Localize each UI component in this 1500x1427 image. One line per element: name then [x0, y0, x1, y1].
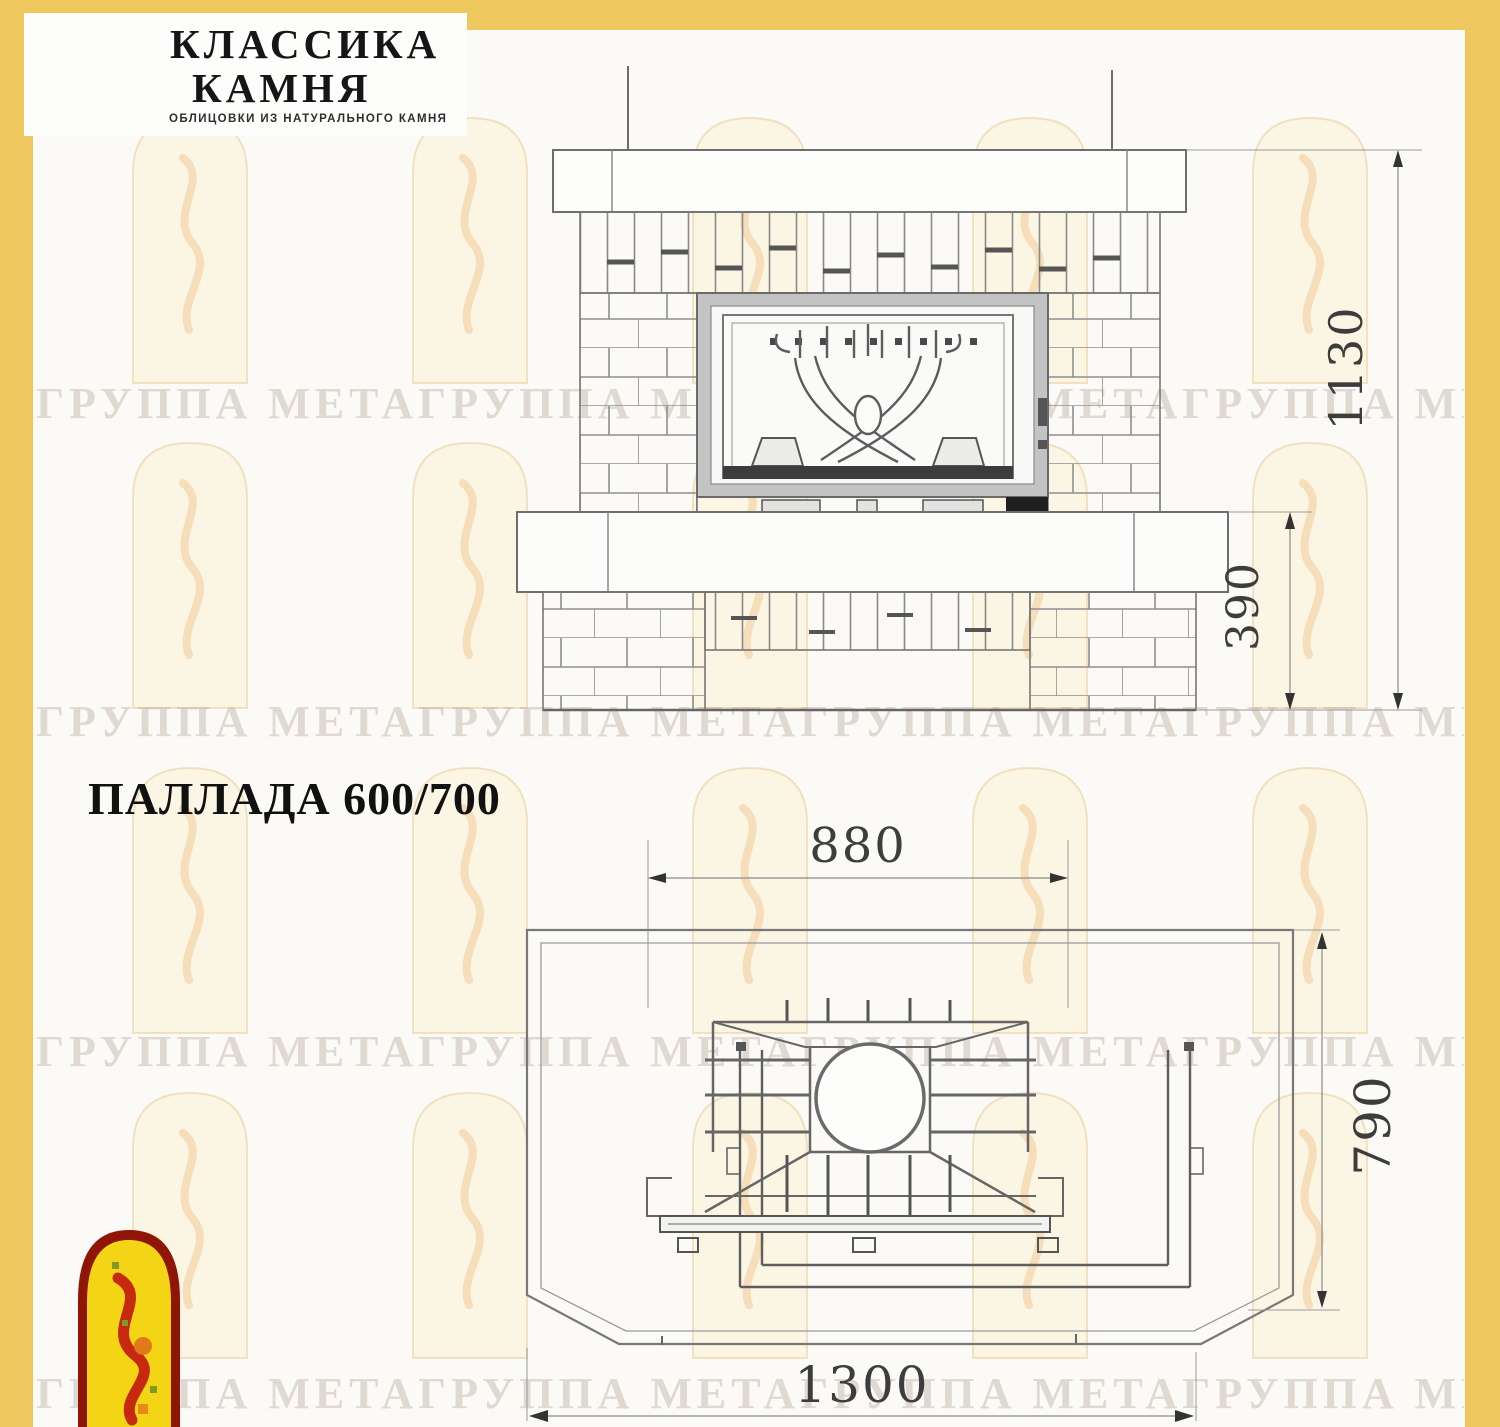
dim-1130-label: 1130 [1319, 305, 1373, 430]
dim-1300-label: 1300 [794, 1356, 929, 1414]
dim-790-label: 790 [1344, 1074, 1402, 1175]
hearth-recess-walls [727, 1042, 1203, 1287]
dimension-total-width: 1300 [527, 1348, 1196, 1422]
dimension-total-height: 1130 [1319, 150, 1403, 710]
page-border-right [1465, 0, 1500, 1427]
dimension-hearth-height: 390 [1218, 512, 1295, 710]
insert-plan [647, 998, 1063, 1252]
front-elevation-drawing: 1130 390 [517, 66, 1422, 710]
page-border-left [0, 0, 33, 1427]
plan-view-drawing: 880 [527, 818, 1402, 1422]
flue-outlet-circle [816, 1044, 924, 1152]
dim-880-label: 880 [809, 818, 907, 874]
company-name-line2: КАМНЯ [192, 68, 372, 109]
company-name-line1: КЛАССИКА [170, 24, 440, 65]
company-tagline: ОБЛИЦОВКИ ИЗ НАТУРАЛЬНОГО КАМНЯ [169, 113, 447, 125]
dim-390-label: 390 [1218, 561, 1269, 651]
dimension-depth: 790 [1248, 930, 1402, 1310]
scanned-page: ГРУППА МЕТАГРУППА МЕТАГРУППА МЕТАГРУППА … [0, 0, 1500, 1427]
dimension-firebox-width: 880 [648, 818, 1068, 1008]
model-title: ПАЛЛАДА 600/700 [88, 772, 501, 825]
meta-group-arch-logo [78, 1230, 180, 1427]
technical-drawing: 1130 390 880 [0, 0, 1500, 1427]
